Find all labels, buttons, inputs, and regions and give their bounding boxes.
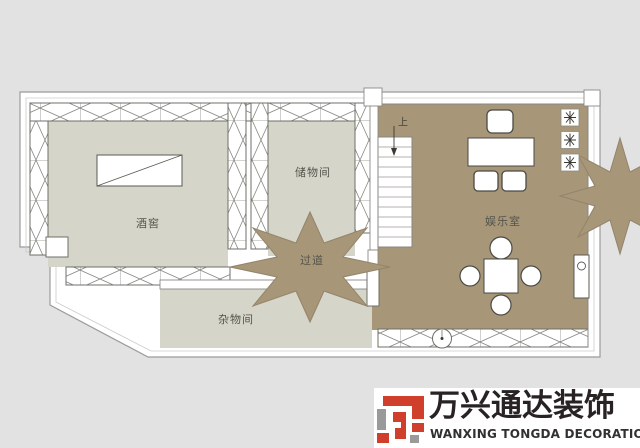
floorplan-page: 酒窖 储物间 过道 娱乐室 杂物间 上 万兴通达装饰 WANXING TONGD… bbox=[0, 0, 640, 448]
company-name-english: WANXING TONGDA DECORATION bbox=[430, 427, 640, 441]
door-leaf bbox=[367, 268, 379, 306]
utility-room-label: 杂物间 bbox=[218, 311, 254, 327]
wine-rack bbox=[97, 155, 182, 186]
wall-left bbox=[30, 121, 48, 255]
company-name-chinese: 万兴通达装饰 bbox=[429, 389, 615, 423]
wall-top bbox=[30, 103, 372, 121]
recreation-room-label: 娱乐室 bbox=[485, 213, 521, 229]
floorplan-drawing bbox=[0, 0, 640, 448]
wall-recreation-bottom bbox=[378, 329, 588, 347]
wall-junction-block-top bbox=[364, 88, 382, 106]
wall-cabinet bbox=[574, 255, 589, 298]
wine-cellar-floor bbox=[48, 121, 228, 267]
logo-mark-icon bbox=[377, 395, 425, 443]
stairs-up-label: 上 bbox=[398, 114, 408, 129]
wall-corner-block-topright bbox=[584, 90, 600, 106]
hallway-label: 过道 bbox=[300, 252, 324, 268]
company-logo: 万兴通达装饰 WANXING TONGDA DECORATION bbox=[374, 388, 640, 448]
wall-stairs-left bbox=[370, 104, 378, 250]
wall-winecellar-right bbox=[228, 103, 246, 249]
wall-storage-left bbox=[251, 103, 268, 249]
storage-room-label: 储物间 bbox=[295, 164, 331, 180]
wine-cellar-label: 酒窖 bbox=[136, 215, 160, 231]
column-symbol bbox=[433, 329, 452, 348]
wall-light-icons bbox=[561, 109, 579, 171]
staircase bbox=[378, 137, 412, 247]
wall-corner-block bbox=[46, 237, 68, 257]
